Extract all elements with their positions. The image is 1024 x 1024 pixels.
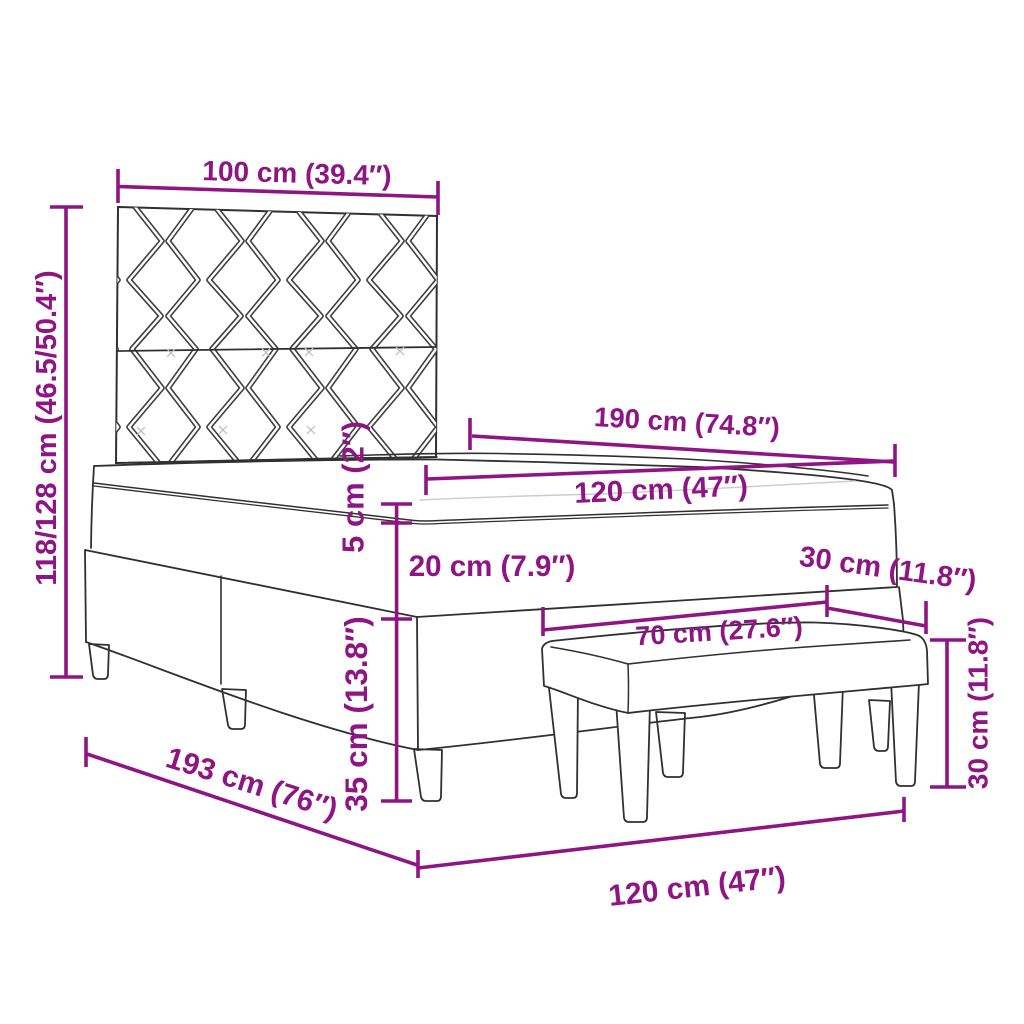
svg-text:100 cm (39.4″): 100 cm (39.4″) — [202, 155, 392, 191]
svg-text:35 cm (13.8″): 35 cm (13.8″) — [338, 616, 374, 811]
svg-text:30 cm (11.8″): 30 cm (11.8″) — [963, 617, 994, 789]
svg-text:5 cm (2″): 5 cm (2″) — [336, 421, 371, 553]
svg-text:20 cm (7.9″): 20 cm (7.9″) — [409, 550, 576, 583]
svg-text:118/128 cm (46.5/50.4″): 118/128 cm (46.5/50.4″) — [31, 270, 63, 585]
